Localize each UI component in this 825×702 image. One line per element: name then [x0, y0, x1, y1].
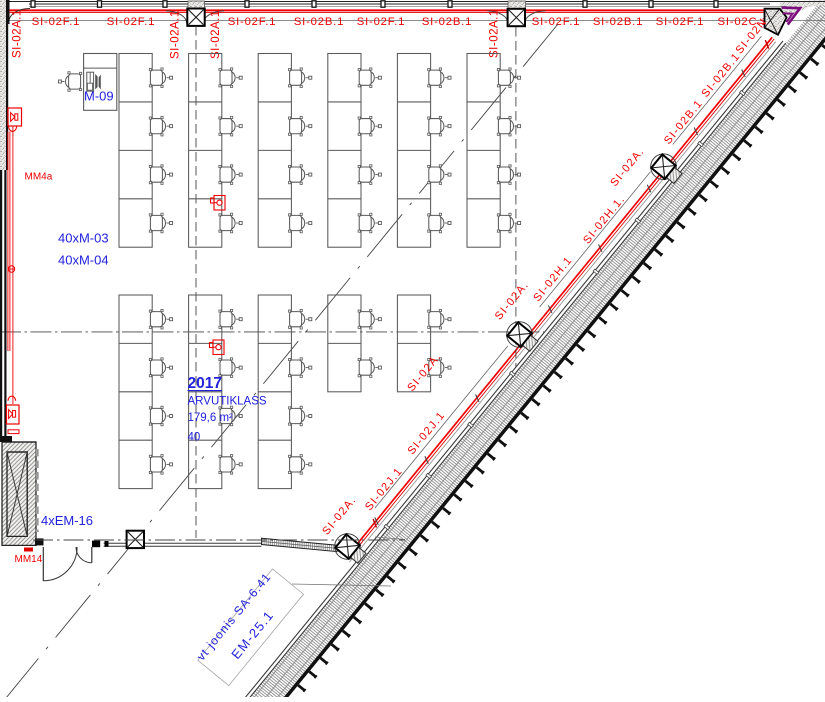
svg-text:ARVUTIKLASS: ARVUTIKLASS	[188, 396, 267, 408]
svg-text:SI-02B.1: SI-02B.1	[662, 97, 706, 146]
svg-text:MM4a: MM4a	[25, 172, 53, 183]
svg-text:SI-02F.1: SI-02F.1	[656, 16, 704, 28]
svg-text:SI-02A.: SI-02A.	[320, 494, 359, 538]
svg-text:SI-02J.1: SI-02J.1	[363, 465, 405, 513]
svg-text:SI-02F.1: SI-02F.1	[357, 16, 405, 28]
svg-text:M-09: M-09	[84, 89, 114, 104]
svg-text:40xM-03: 40xM-03	[58, 231, 109, 246]
svg-text:SI-02B.1: SI-02B.1	[593, 16, 643, 28]
svg-text:SI-02A.1: SI-02A.1	[12, 9, 24, 58]
svg-text:SI-02B.1: SI-02B.1	[699, 50, 743, 99]
svg-text:SI-02A.1: SI-02A.1	[489, 9, 501, 58]
svg-text:SI-02A.1: SI-02A.1	[170, 10, 182, 59]
svg-text:2017: 2017	[188, 375, 222, 392]
svg-text:SI-02F.1: SI-02F.1	[228, 16, 276, 28]
svg-text:SI-02F.1: SI-02F.1	[107, 16, 155, 28]
svg-text:40: 40	[188, 432, 201, 444]
svg-text:40xM-04: 40xM-04	[58, 253, 109, 268]
svg-text:SI-02B.1: SI-02B.1	[422, 16, 472, 28]
svg-text:MM14: MM14	[15, 554, 43, 565]
svg-text:179,6 m²: 179,6 m²	[188, 412, 234, 424]
svg-text:SI-02A.1: SI-02A.1	[210, 10, 222, 59]
svg-text:SI-02B.1: SI-02B.1	[294, 16, 344, 28]
svg-text:SI-02A.: SI-02A.	[493, 279, 532, 323]
svg-text:SI-02H.1: SI-02H.1	[531, 254, 575, 304]
svg-text:SI-02F.1: SI-02F.1	[32, 16, 80, 28]
svg-text:4xEM-16: 4xEM-16	[41, 513, 93, 528]
